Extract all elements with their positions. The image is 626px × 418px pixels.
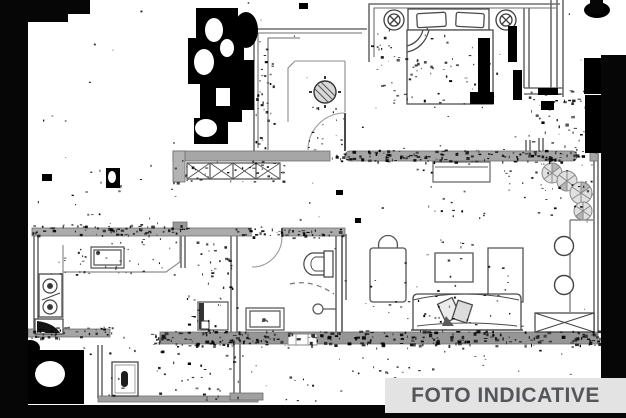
stool-icon (555, 276, 574, 295)
plant-icon (574, 202, 592, 220)
kitchen-sink (91, 247, 124, 268)
floor-plan-scan: FOTO INDICATIVE (0, 0, 626, 418)
sofa (411, 294, 523, 330)
cabinet (198, 302, 228, 330)
toilet-icon (304, 251, 333, 277)
photo-indicative-banner: FOTO INDICATIVE (385, 378, 626, 413)
washing-machine-icon (112, 362, 138, 396)
pillow (456, 12, 485, 27)
radiator-icon (535, 313, 594, 332)
wall-band-bottom (160, 332, 598, 344)
paper-background (0, 0, 626, 418)
stool-icon (555, 237, 574, 256)
armchair (370, 248, 406, 302)
pillow (417, 12, 447, 27)
wall-band-upper-left (173, 151, 330, 161)
coffee-table (435, 253, 473, 282)
wall-stub (173, 151, 185, 182)
radiator-icon (187, 163, 280, 179)
banner-label: FOTO INDICATIVE (411, 384, 600, 408)
right-scan-bar (601, 55, 626, 378)
stove-icon (39, 274, 62, 317)
floor-plan-drawing (0, 0, 626, 418)
bathroom-sink (246, 308, 284, 330)
top-left-scan-notch (28, 0, 90, 14)
left-scan-bar (0, 0, 28, 418)
console-table (433, 162, 490, 182)
